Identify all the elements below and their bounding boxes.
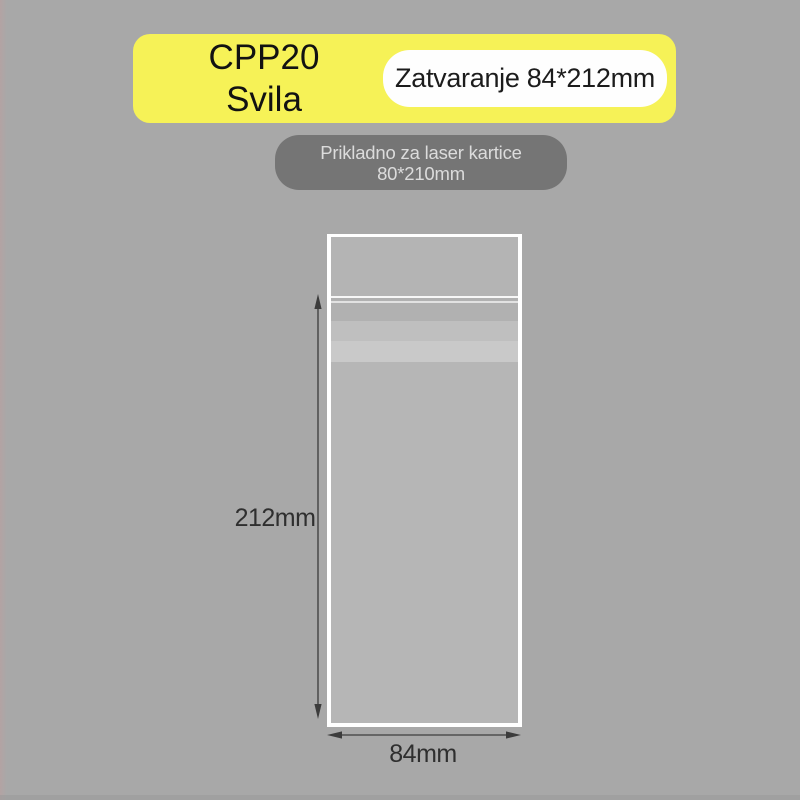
product-name-line1: CPP20 — [209, 37, 320, 79]
product-name: CPP20 Svila — [133, 34, 395, 123]
bag-fold-line — [331, 296, 518, 304]
suitability-line2: 80*210mm — [377, 163, 465, 184]
height-dimension-label: 212mm — [233, 504, 317, 533]
suitability-badge: Prikladno za laser kartice 80*210mm — [275, 135, 567, 190]
suitability-line1: Prikladno za laser kartice — [320, 142, 521, 163]
bag-adhesive-band-2 — [331, 341, 518, 362]
bag-inner — [331, 237, 518, 723]
bag-underfold-strip — [331, 304, 518, 321]
bottom-edge-strip — [0, 795, 800, 800]
bag-adhesive-band-1 — [331, 321, 518, 341]
product-banner: CPP20 Svila Zatvaranje 84*212mm — [133, 34, 676, 123]
product-diagram-page: CPP20 Svila Zatvaranje 84*212mm Prikladn… — [0, 0, 800, 800]
product-name-line2: Svila — [226, 79, 302, 121]
bag-body — [331, 362, 518, 723]
bag-flap — [331, 237, 518, 296]
closure-size-label: Zatvaranje 84*212mm — [395, 63, 655, 94]
closure-size-badge: Zatvaranje 84*212mm — [383, 50, 667, 107]
bag-illustration — [327, 234, 522, 727]
left-edge-tint — [0, 0, 7, 800]
width-dimension-label: 84mm — [381, 740, 465, 769]
